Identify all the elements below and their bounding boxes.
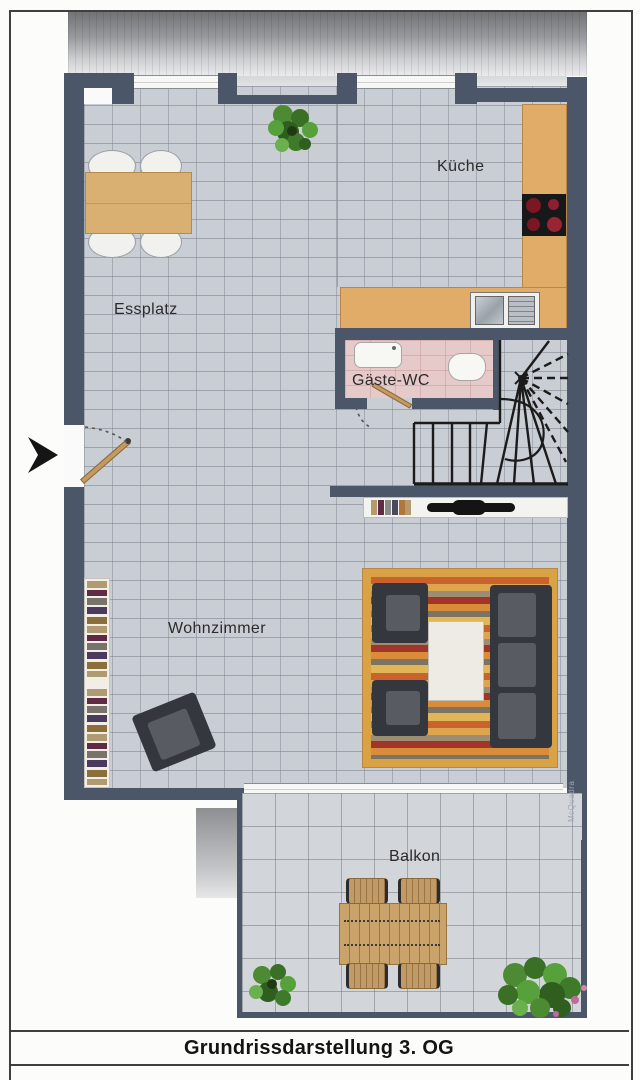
page-border: [9, 10, 633, 1080]
floor-plan-page: Küche Essplatz Gäste-WC Wohnzimmer Balko…: [0, 0, 640, 1080]
